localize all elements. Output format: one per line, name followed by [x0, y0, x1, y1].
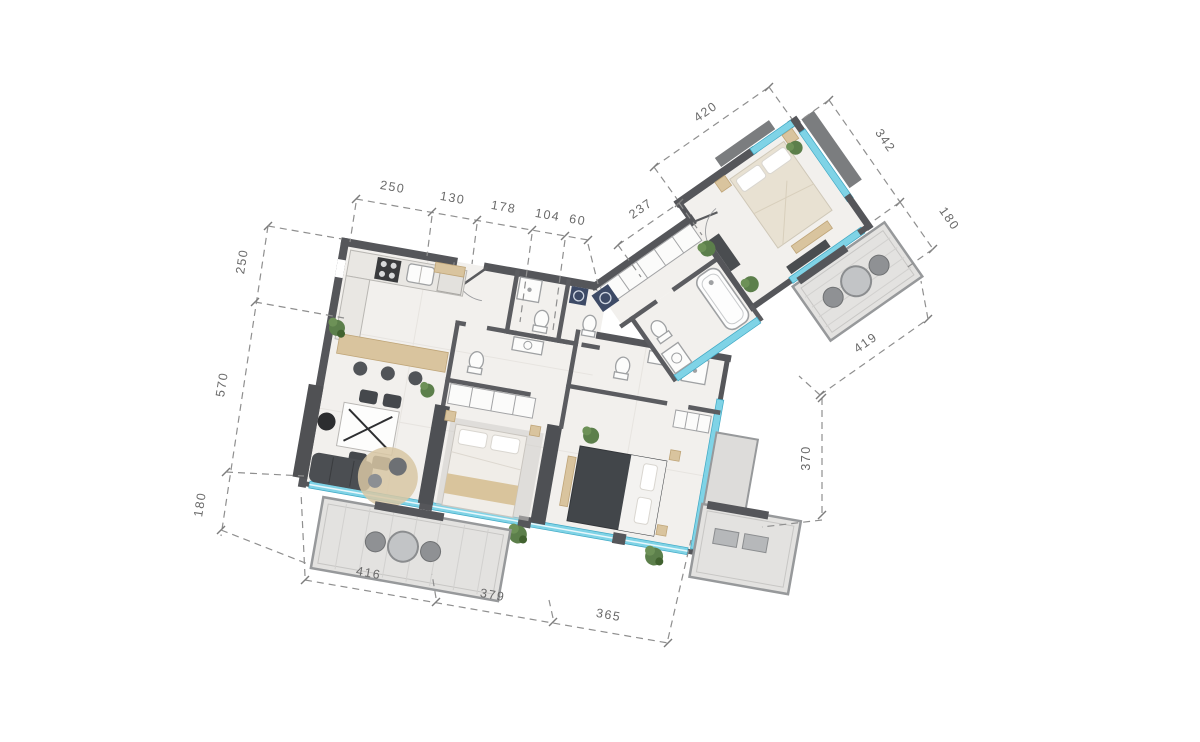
- dim-label: 130: [439, 189, 466, 207]
- dim-label: 365: [595, 606, 622, 624]
- dim-label: 250: [379, 178, 406, 196]
- floor-plan-canvas: 250 130 178 104 60 237 420: [0, 0, 1200, 742]
- dim-label: 104: [534, 206, 561, 224]
- double-bed: [442, 424, 527, 517]
- balcony-small: [690, 500, 802, 594]
- dim-label: 237: [626, 196, 655, 222]
- nightstand: [445, 410, 457, 422]
- stove: [374, 257, 401, 283]
- dim-label: 60: [568, 212, 587, 229]
- dim-label: 379: [479, 586, 506, 604]
- dim-label: 342: [872, 126, 898, 155]
- nightstand: [656, 525, 668, 537]
- dim-label: 416: [355, 564, 382, 582]
- washing-machine: [569, 286, 589, 306]
- dim-label: 250: [233, 248, 251, 275]
- dim-label: 370: [799, 445, 813, 470]
- dim-label: 420: [691, 99, 720, 125]
- dim-label: 180: [191, 491, 209, 518]
- dim-label: 178: [490, 198, 517, 216]
- nightstand: [529, 425, 541, 437]
- floor-plan-svg: 250 130 178 104 60 237 420: [0, 0, 1200, 742]
- dim-label: 419: [851, 330, 880, 356]
- double-bed-dark: [557, 444, 667, 536]
- dim-label: 180: [936, 204, 962, 233]
- dim-label: 570: [213, 371, 231, 398]
- nightstand: [669, 450, 681, 462]
